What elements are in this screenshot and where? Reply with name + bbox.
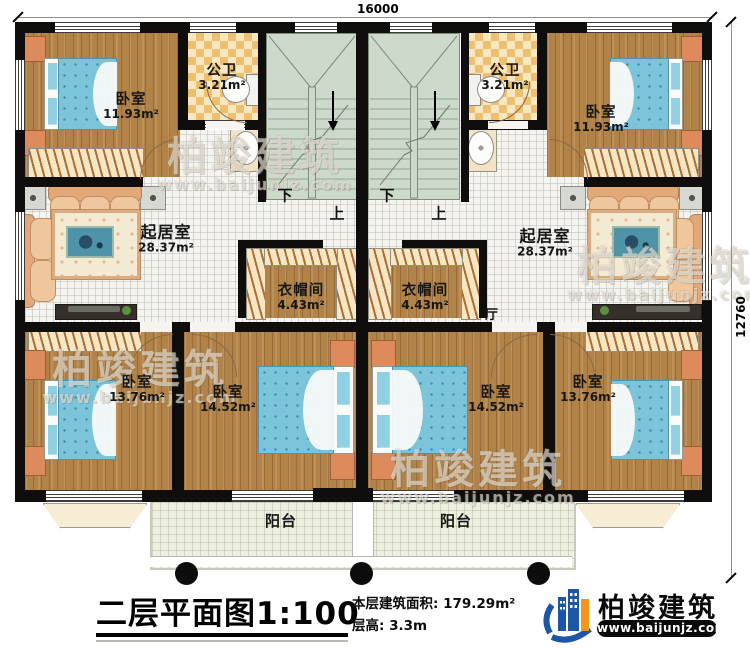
column (175, 562, 198, 585)
stair-down-label-left: 下 (277, 185, 292, 206)
window (702, 212, 712, 300)
plant (122, 306, 131, 315)
room-label-closet-right: 衣帽间 4.43m² (401, 284, 448, 312)
floor-height-row: 层高: 3.3m (352, 614, 427, 634)
room-name: 衣帽间 (277, 284, 324, 299)
floor-height-value: 3.3m (389, 618, 427, 634)
window (702, 60, 712, 130)
closet-rack (368, 248, 392, 320)
bed-headboard (332, 366, 354, 454)
dimension-width: 16000 (357, 2, 399, 16)
room-area: 13.76m² (560, 391, 616, 404)
stairs-drawing (368, 33, 460, 200)
room-label-bedroom-bottom-right: 卧室 13.76m² (560, 376, 616, 404)
end-table (560, 186, 586, 210)
room-label-living-left: 起居室 28.37m² (138, 224, 194, 253)
window-bay (46, 490, 142, 502)
room-name: 公卫 (198, 64, 245, 79)
room-area: 4.43m² (277, 299, 324, 312)
wall-bedrooms-top (15, 322, 712, 332)
window (15, 212, 25, 300)
sink (233, 131, 259, 165)
room-label-balcony-right: 阳台 (440, 514, 472, 530)
plan-title-text: 二层平面图1:100 (96, 596, 360, 632)
plan-title-name: 二层平面图 (96, 596, 256, 632)
bed-mattress (392, 366, 468, 454)
wall-center-stub (313, 488, 373, 502)
room-name: 卧室 (468, 386, 524, 401)
floorplan-canvas: 柏竣建筑 www.baijunjz.com 柏竣建筑 www.baijunjz.… (0, 0, 750, 648)
window (295, 22, 337, 33)
room-label-balcony-left: 阳台 (265, 514, 297, 530)
window (190, 22, 236, 33)
title-underline (96, 633, 348, 637)
room-label-bedroom-top-left: 卧室 11.93m² (103, 93, 159, 121)
closet-rack (461, 248, 481, 320)
stair-up-label-left: 上 (329, 203, 344, 224)
room-label-bedroom-bottom-left: 卧室 13.76m² (109, 376, 165, 404)
wall-bedroom-bath-right (537, 22, 547, 130)
room-name: 卧室 (560, 376, 616, 391)
stair-down-label-right: 下 (379, 185, 394, 206)
bay-window-left (40, 500, 150, 531)
plan-title: 二层平面图1:100 (96, 588, 360, 633)
room-name: 卧室 (573, 106, 629, 121)
room-area: 13.76m² (109, 391, 165, 404)
brand-logo-icon (540, 583, 596, 643)
plant (600, 306, 609, 315)
room-label-bedroom-bottom-midleft: 卧室 14.52m² (200, 386, 256, 414)
nightstand (371, 340, 396, 368)
wall-bedroom-bath-left (178, 22, 188, 130)
room-area: 11.93m² (573, 121, 629, 134)
wall-closet-right (479, 240, 487, 318)
room-name: 阳台 (265, 514, 297, 530)
plan-title-scale: 1:100 (256, 596, 360, 632)
room-area: 28.37m² (138, 241, 194, 254)
room-label-bath-left: 公卫 3.21m² (198, 64, 245, 92)
wall-bath-stair-left (258, 22, 266, 202)
room-area: 3.21m² (481, 79, 528, 92)
room-label-living-right: 起居室 28.37m² (517, 228, 573, 257)
bed-mattress (611, 380, 669, 460)
tv (68, 306, 120, 312)
door-gap (190, 322, 235, 332)
wall-closet-left (238, 240, 246, 318)
floor-area-value: 179.29m² (443, 596, 515, 612)
wall-bath-stair-right (461, 22, 469, 202)
wall-bottom-bedrooms-left (172, 332, 184, 490)
window (390, 22, 432, 33)
dimension-line-right (731, 22, 732, 578)
stair-up-label-right: 上 (431, 203, 446, 224)
floor-height-label: 层高: (352, 618, 384, 634)
room-name: 卧室 (109, 376, 165, 391)
nightstand (330, 452, 355, 480)
column (350, 562, 373, 585)
room-name: 起居室 (138, 224, 194, 241)
bed-headboard (667, 58, 683, 130)
sink (468, 131, 494, 165)
building-logo-icon (540, 583, 596, 643)
wardrobe-rack (583, 148, 699, 178)
room-name: 衣帽间 (401, 284, 448, 299)
nightstand (330, 340, 355, 368)
wall-closet-top-left (238, 240, 323, 248)
room-area: 3.21m² (198, 79, 245, 92)
wall-center (356, 22, 368, 490)
window (55, 22, 140, 33)
stairs-drawing (266, 33, 358, 200)
closet-rack (246, 248, 266, 320)
floor-area-row: 本层建筑面积: 179.29m² (352, 592, 515, 612)
coffee-table (612, 226, 660, 258)
wall-closet-top-right (402, 240, 487, 248)
window (587, 22, 672, 33)
room-name: 卧室 (103, 93, 159, 108)
closet-rack (390, 248, 463, 266)
stairwell-right (368, 33, 460, 200)
wardrobe-rack (28, 148, 144, 178)
stairwell-left (266, 33, 358, 200)
balcony-door (232, 490, 313, 502)
wall-bedroom-living-left (15, 177, 143, 187)
room-name: 公卫 (481, 64, 528, 79)
dimension-height: 12760 (734, 296, 748, 338)
room-area: 11.93m² (103, 108, 159, 121)
room-label-bedroom-top-right: 卧室 11.93m² (573, 106, 629, 134)
dimension-line-top (18, 17, 712, 18)
bed-mattress (58, 380, 116, 460)
room-area: 14.52m² (468, 401, 524, 414)
floor-area-label: 本层建筑面积: (352, 596, 438, 612)
closet-rack (264, 248, 338, 266)
room-name: 厅 (485, 309, 499, 323)
bed-mattress (258, 366, 334, 454)
door-gap (555, 322, 587, 332)
door-gap (492, 322, 537, 332)
column (527, 562, 550, 585)
balcony-door (373, 490, 454, 502)
window (489, 22, 535, 33)
room-label-bedroom-bottom-midright: 卧室 14.52m² (468, 386, 524, 414)
room-area: 4.43m² (401, 299, 448, 312)
title-underline-shadow (96, 640, 348, 642)
tv (636, 306, 690, 312)
room-label-closet-left: 衣帽间 4.43m² (277, 284, 324, 312)
coffee-table (66, 226, 114, 258)
bed-headboard (372, 366, 394, 454)
room-name: 起居室 (517, 228, 573, 245)
room-label-bath-right: 公卫 3.21m² (481, 64, 528, 92)
room-area: 14.52m² (200, 401, 256, 414)
room-name: 阳台 (440, 514, 472, 530)
wall-bedroom-living-right (584, 177, 712, 187)
end-table (140, 186, 166, 210)
brand-website: www.baijunjz.com (597, 620, 717, 637)
nightstand (371, 452, 396, 480)
room-name: 卧室 (200, 386, 256, 401)
bay-window-right (573, 500, 683, 531)
bed-headboard (667, 380, 683, 460)
room-label-hall: 厅 (485, 309, 499, 323)
door-gap (140, 322, 172, 332)
window-bay (588, 490, 684, 502)
window (15, 60, 25, 130)
room-area: 28.37m² (517, 245, 573, 258)
